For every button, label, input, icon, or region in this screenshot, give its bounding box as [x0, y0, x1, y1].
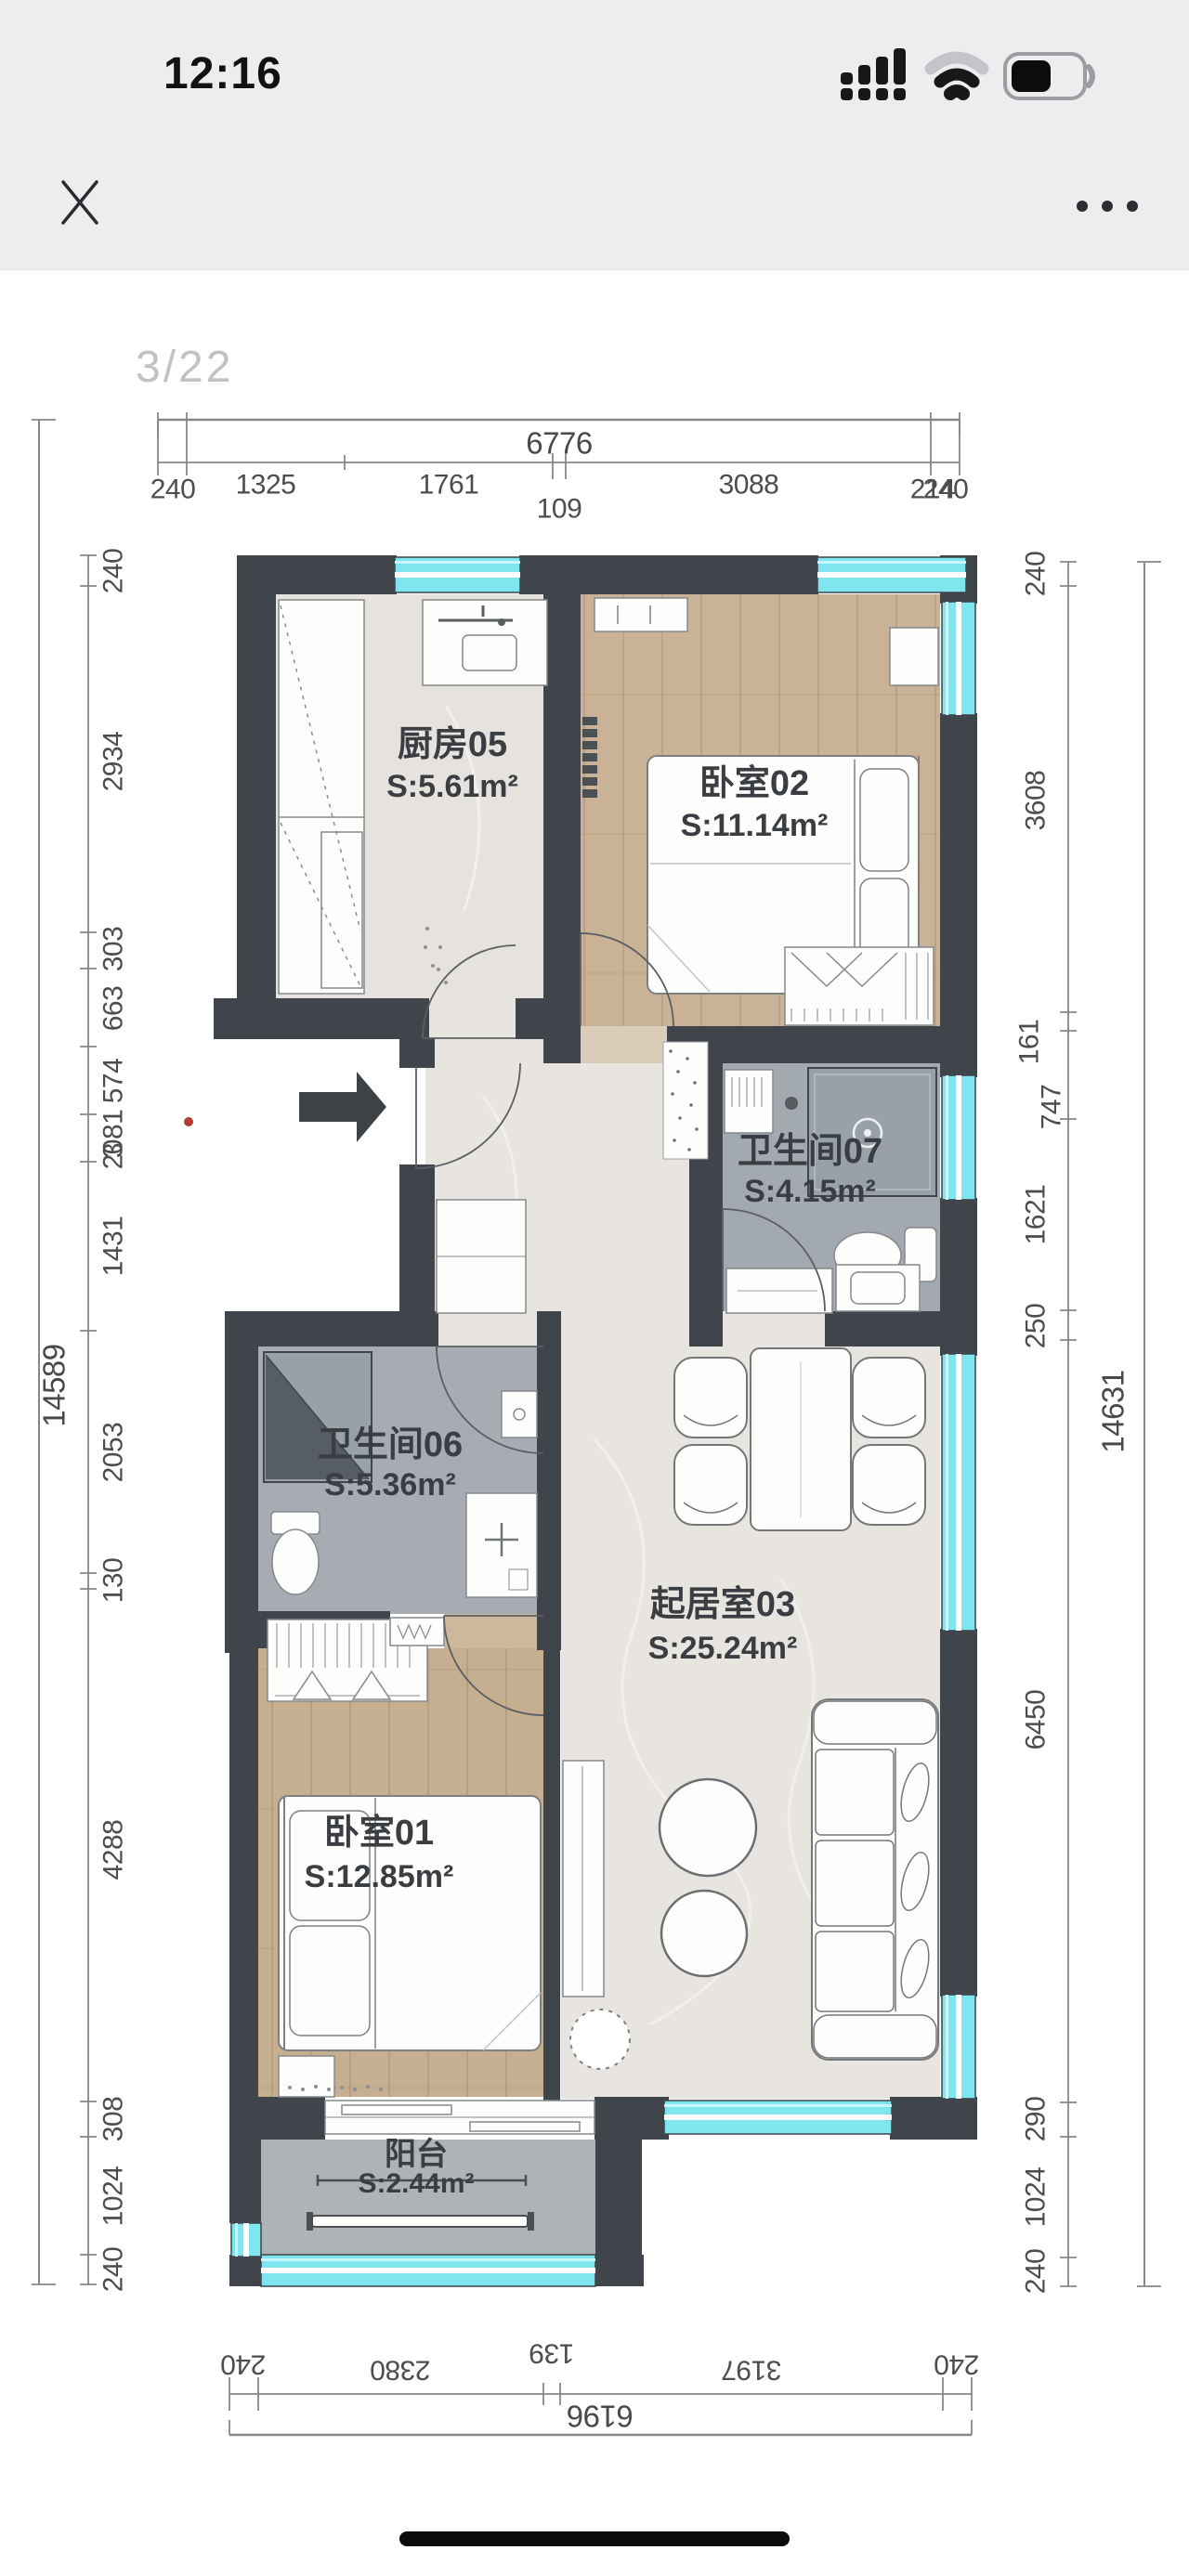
dim-right-seg: 6450 [1021, 1690, 1052, 1750]
room-area-kitchen: S:5.61m² [386, 769, 518, 804]
coffee-table-small [661, 1891, 747, 1976]
dim-top-seg: 109 [537, 494, 582, 525]
dim-bottom-seg: 139 [529, 2338, 575, 2369]
room-area-bedroom2: S:11.14m² [681, 808, 829, 843]
dim-top-seg: 3088 [719, 470, 779, 501]
dim-left-seg: 303 [98, 927, 129, 972]
dim-right-seg: 240 [1021, 552, 1052, 597]
bathroom6-sink [466, 1493, 537, 1597]
balcony-sliding-door [325, 2101, 594, 2134]
bedroom2-dresser [594, 598, 687, 631]
room-area-bathroom7: S:4.15m² [744, 1174, 876, 1209]
close-icon[interactable] [52, 175, 108, 230]
bathroom6-window [390, 1618, 444, 1646]
wifi-icon [931, 58, 983, 94]
plant-icon [570, 2010, 630, 2069]
room-area-bedroom1: S:12.85m² [305, 1859, 454, 1894]
bathroom6-toilet [271, 1512, 320, 1594]
tv-stand [563, 1761, 604, 1997]
dim-left-seg: 663 [98, 986, 129, 1032]
bedroom2-nightstand [890, 628, 938, 685]
dim-right-seg: 250 [1021, 1304, 1052, 1349]
dim-right-seg: 3608 [1021, 771, 1052, 831]
status-bar: 12:16 [0, 0, 1189, 149]
dim-left-seg: 240 [98, 549, 129, 594]
kitchen-sink [423, 600, 547, 685]
image-viewer-toolbar [0, 149, 1189, 270]
dim-top-total: 6776 [526, 426, 592, 461]
dim-left-total: 14589 [37, 1344, 72, 1426]
bedroom1-nightstand [279, 2056, 334, 2097]
dim-bottom-total: 6196 [567, 2400, 633, 2434]
radiator-icon [582, 717, 597, 798]
status-icons [827, 37, 1105, 149]
room-area-living: S:25.24m² [648, 1631, 798, 1666]
dim-left-overlap: 3 [98, 1143, 129, 1158]
room-label-kitchen: 厨房05 [398, 725, 507, 764]
dim-right-seg: 161 [1014, 1020, 1045, 1065]
dim-right-seg: 1621 [1021, 1185, 1052, 1245]
clock-text: 12:16 [163, 48, 282, 99]
dim-right-seg: 747 [1037, 1085, 1067, 1130]
room-area-bathroom6: S:5.36m² [324, 1467, 456, 1503]
dim-right-seg: 290 [1021, 2097, 1052, 2142]
dim-bottom-seg: 2380 [371, 2355, 431, 2386]
dim-bottom-seg: 240 [934, 2349, 980, 2380]
dim-left-seg: 2053 [98, 1423, 129, 1483]
dim-top-overlap: 214 [910, 475, 956, 505]
room-label-bathroom7: 卫生间07 [738, 1132, 882, 1171]
dim-right-seg: 240 [1021, 2249, 1052, 2295]
home-indicator[interactable] [399, 2531, 790, 2546]
shoe-cabinet [437, 1200, 526, 1313]
dim-left-seg: 130 [98, 1558, 129, 1604]
dim-left-seg: 1431 [98, 1216, 129, 1277]
dim-left-seg: 2934 [98, 732, 129, 792]
entry-arrow-icon [299, 1072, 386, 1142]
dining-table [751, 1348, 851, 1530]
room-label-living: 起居室03 [650, 1584, 795, 1624]
battery-icon [1005, 54, 1092, 98]
dim-right-seg: 1024 [1021, 2167, 1052, 2228]
dim-left-seg: 240 [98, 2247, 129, 2293]
room-label-bedroom1: 卧室01 [324, 1813, 434, 1853]
bathroom6-washer [502, 1391, 537, 1438]
dim-right-total: 14631 [1096, 1370, 1130, 1452]
room-area-balcony: S:2.44m² [358, 2168, 474, 2199]
dim-left-seg: 308 [98, 2097, 129, 2142]
room-label-bedroom2: 卧室02 [699, 763, 809, 803]
room-label-bathroom6: 卫生间06 [318, 1425, 463, 1464]
more-options-icon[interactable] [1068, 182, 1152, 223]
sofa [812, 1699, 938, 2060]
hall-closet [663, 1042, 708, 1159]
dim-top-seg: 240 [150, 475, 196, 505]
dim-bottom-seg: 240 [221, 2349, 267, 2380]
dim-top-seg: 1325 [236, 470, 296, 501]
dim-left-seg: 574 [98, 1059, 129, 1104]
dim-left-seg: 2081 [98, 1110, 129, 1170]
cellular-icon [841, 48, 906, 100]
room-label-balcony: 阳台 [385, 2137, 448, 2172]
dim-left-seg: 4288 [98, 1820, 129, 1880]
kitchen-counter [279, 600, 364, 994]
page-indicator: 3/22 [136, 342, 233, 393]
dim-left-seg: 1024 [98, 2166, 129, 2227]
coffee-table-large [660, 1779, 756, 1876]
dim-bottom-seg: 3197 [722, 2355, 782, 2386]
red-dot [184, 1117, 193, 1126]
dim-top-seg: 1761 [419, 470, 479, 501]
screenshot-page: 12:16 [0, 0, 1189, 2576]
bedroom2-wardrobe [785, 947, 934, 1025]
